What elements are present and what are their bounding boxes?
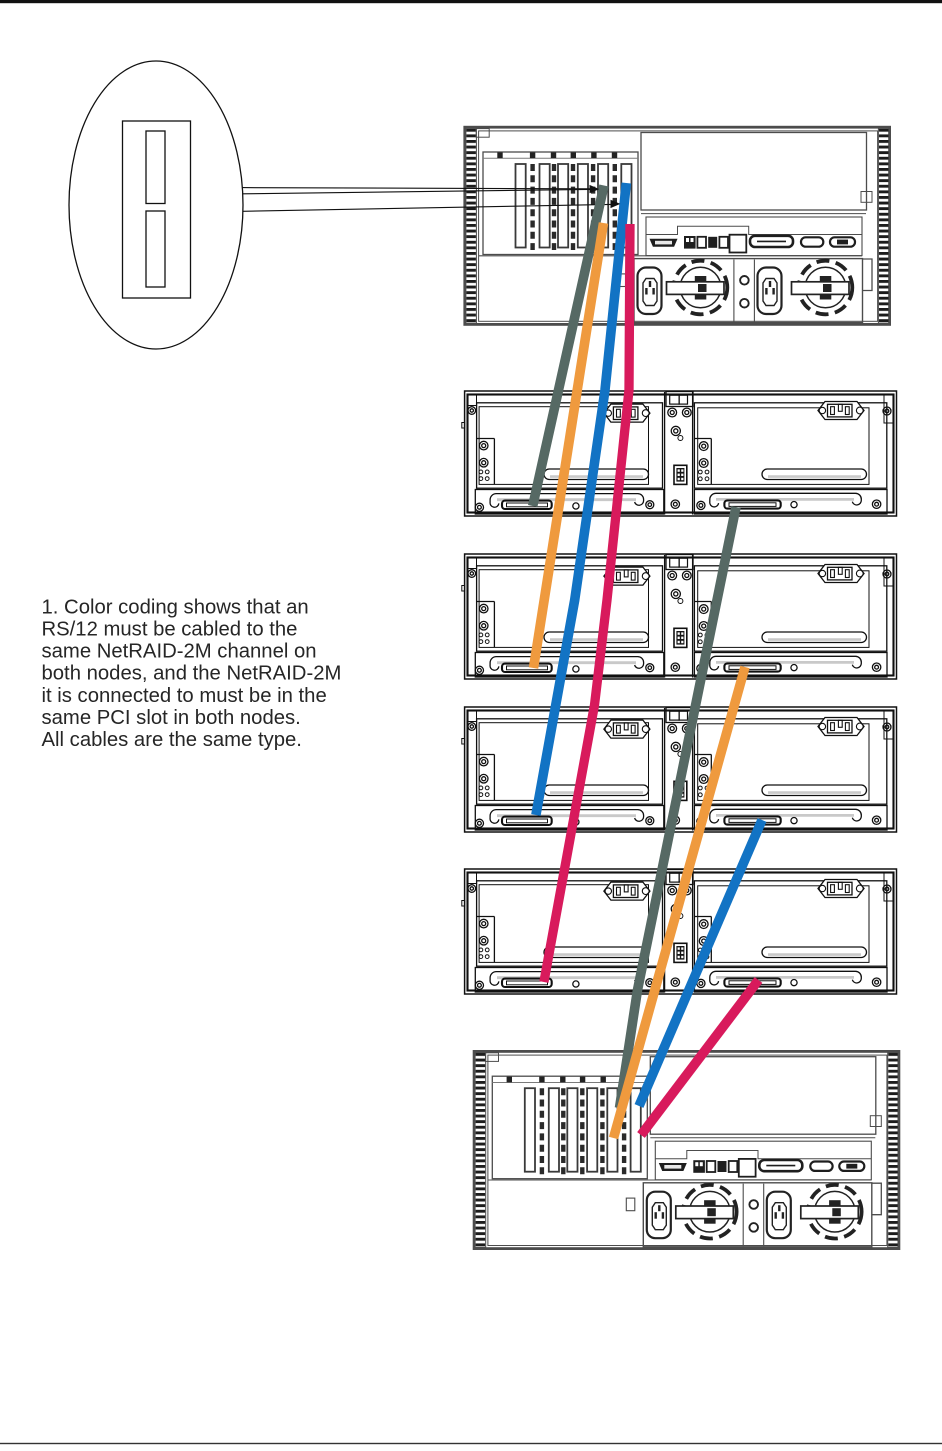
svg-text:1. Color coding shows that an: 1. Color coding shows that an <box>42 596 309 618</box>
svg-text:same NetRAID-2M channel on: same NetRAID-2M channel on <box>42 641 317 663</box>
svg-text:RS/12 must be cabled to the: RS/12 must be cabled to the <box>42 619 298 641</box>
svg-text:same PCI slot in both nodes.: same PCI slot in both nodes. <box>42 707 301 729</box>
svg-text:both nodes, and the NetRAID-2M: both nodes, and the NetRAID-2M <box>42 663 342 685</box>
svg-text:it is connected to must be in: it is connected to must be in the <box>42 685 327 707</box>
svg-text:All cables are the same type.: All cables are the same type. <box>42 729 302 751</box>
